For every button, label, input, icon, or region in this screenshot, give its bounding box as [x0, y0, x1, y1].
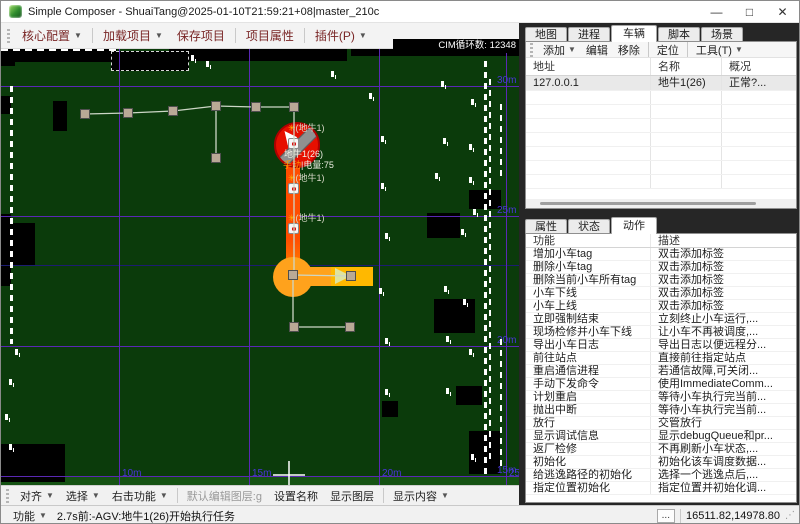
lidar-wall-trace: [484, 61, 487, 476]
grid-label-y: 25m: [497, 206, 516, 216]
action-desc-cell: 指定位置并初始化调...: [651, 482, 796, 494]
table-cell: [651, 147, 722, 160]
table-cell: [526, 175, 651, 188]
menu-separator: [304, 28, 305, 43]
lidar-echo-mark: [441, 81, 444, 87]
tab-5[interactable]: 场景: [701, 27, 743, 42]
lidar-echo-mark: [435, 173, 438, 179]
grid-line-vertical: [119, 49, 120, 485]
table-cell: [651, 175, 722, 188]
action-row[interactable]: 前往站点直接前往指定站点: [526, 352, 796, 365]
route-segment: [128, 111, 173, 113]
app-icon: [9, 5, 22, 18]
menu-item-4[interactable]: 项目属性: [239, 24, 301, 47]
waypoint-marker-icon[interactable]: [288, 138, 299, 149]
action-row[interactable]: 显示调试信息显示debugQueue和pr...: [526, 430, 796, 443]
action-row[interactable]: 放行交管放行: [526, 417, 796, 430]
vehicle-toolbar-button-1[interactable]: 添加▼: [538, 42, 581, 58]
grid-line-horizontal: [1, 476, 519, 477]
table-cell: [722, 91, 796, 104]
action-name-cell: 放行: [526, 417, 651, 429]
vehicle-panel-tabs: 地图进程车辆脚本场景: [525, 25, 797, 42]
action-name-cell: 给逃逸路径的初始化: [526, 469, 651, 481]
action-desc-cell: 若通信故障,可关闭...: [651, 365, 796, 377]
action-name-cell: 增加小车tag: [526, 248, 651, 260]
lidar-wall-trace: [10, 86, 13, 344]
status-bar: 功能 ▼ 2.7s前:-AGV:地牛1(26)开始执行任务 ... 16511.…: [1, 505, 799, 524]
action-panel-body: 功能描述 增加小车tag双击添加标签删除小车tag双击添加标签删除当前小车所有t…: [525, 233, 797, 503]
lidar-echo-mark: [385, 389, 388, 395]
vehicle-horizontal-scrollbar[interactable]: [526, 199, 796, 208]
action-name-cell: 删除当前小车所有tag: [526, 274, 651, 286]
chevron-down-icon: ▼: [74, 32, 82, 40]
lidar-wall-trace: [500, 339, 502, 469]
waypoint-tag-label: ✳(地牛1): [288, 213, 325, 223]
chevron-down-icon: ▼: [92, 492, 100, 500]
action-desc-cell: 立刻终止小车运行,...: [651, 313, 796, 325]
action-row[interactable]: 重启通信进程若通信故障,可关闭...: [526, 365, 796, 378]
vehicle-toolbar-button-2[interactable]: 编辑: [581, 42, 613, 58]
lidar-echo-mark: [444, 286, 447, 292]
lidar-echo-mark: [385, 338, 388, 344]
button-label: 编辑: [586, 42, 608, 58]
tab-2[interactable]: 状态: [568, 219, 610, 234]
edit-toolbar-item-3[interactable]: 右击功能▼: [106, 488, 174, 504]
lidar-echo-mark: [369, 93, 372, 99]
table-cell: [722, 119, 796, 132]
maximize-button[interactable]: □: [733, 1, 766, 22]
route-node[interactable]: [212, 154, 221, 163]
tab-1[interactable]: 地图: [525, 27, 567, 42]
action-name-cell: 小车下线: [526, 287, 651, 299]
lidar-echo-mark: [381, 183, 384, 189]
action-panel: 属性状态动作 功能描述 增加小车tag双击添加标签删除小车tag双击添加标签删除…: [525, 217, 797, 503]
cim-loop-counter: CIM循环数: 12348: [393, 39, 519, 53]
table-cell: [722, 147, 796, 160]
waypoint-tag-label: ✳(地牛1): [288, 173, 325, 183]
more-button[interactable]: ...: [657, 509, 675, 523]
chevron-down-icon: ▼: [155, 32, 163, 40]
table-row-empty: [526, 91, 796, 105]
title-bar[interactable]: Simple Composer - ShuaiTang@2025-01-10T2…: [1, 1, 799, 23]
lidar-echo-mark: [5, 414, 8, 420]
lidar-echo-mark: [191, 55, 194, 61]
action-name-cell: 小车上线: [526, 300, 651, 312]
button-label: 选择: [66, 488, 88, 504]
lidar-echo-mark: [471, 99, 474, 105]
action-desc-cell: 等待小车执行完当前...: [651, 391, 796, 403]
lidar-echo-mark: [463, 299, 466, 305]
lidar-echo-mark: [385, 233, 388, 239]
table-row-empty: [526, 119, 796, 133]
table-cell: [651, 161, 722, 174]
action-row[interactable]: 返厂检修不再刷新小车状态,...: [526, 443, 796, 456]
action-desc-cell: 交管放行: [651, 417, 796, 429]
lidar-echo-mark: [471, 454, 474, 460]
table-cell: [526, 105, 651, 118]
toolbar-grip[interactable]: [6, 489, 9, 503]
table-cell: [526, 133, 651, 146]
tab-1[interactable]: 属性: [525, 219, 567, 234]
action-row[interactable]: 计划重启等待小车执行完当前...: [526, 391, 796, 404]
table-cell: [722, 133, 796, 146]
edit-toolbar-item-2[interactable]: 选择▼: [60, 488, 106, 504]
lidar-wall-trace: [500, 104, 502, 179]
menu-item-5[interactable]: 插件(P)▼: [308, 24, 374, 47]
toolbar-separator: [383, 488, 384, 503]
action-name-cell: 导出小车日志: [526, 339, 651, 351]
resize-grip-icon[interactable]: ⋰: [785, 510, 795, 522]
action-desc-cell: 双击添加标签: [651, 261, 796, 273]
waypoint-tag-text: (地牛1): [296, 123, 325, 133]
toolbar-grip[interactable]: [7, 29, 10, 43]
table-cell: [651, 91, 722, 104]
table-row-empty: [526, 161, 796, 175]
route-node[interactable]: [290, 103, 299, 112]
table-row[interactable]: 127.0.0.1地牛1(26)正常?...: [526, 76, 796, 91]
table-row-empty: [526, 105, 796, 119]
chevron-down-icon: ▼: [46, 492, 54, 500]
lidar-echo-mark: [473, 209, 476, 215]
lidar-wall-trace: [489, 79, 491, 459]
action-row[interactable]: 手动下发命令使用ImmediateComm...: [526, 378, 796, 391]
action-desc-cell: 双击添加标签: [651, 248, 796, 260]
vehicle-panel: 地图进程车辆脚本场景 添加▼编辑移除定位工具(T)▼ 地址名称概况 127.0.…: [525, 25, 797, 209]
action-name-cell: 立即强制结束: [526, 313, 651, 325]
button-label: 默认编辑图层:g: [187, 488, 262, 504]
grid-label-y: 30m: [497, 76, 516, 86]
menu-item-3[interactable]: 保存项目: [170, 24, 232, 47]
action-name-cell: 初始化: [526, 456, 651, 468]
chevron-down-icon: ▼: [39, 512, 47, 520]
action-name-cell: 返厂检修: [526, 443, 651, 455]
agv-name-label: 地牛1(26): [284, 149, 323, 159]
table-cell: 正常?...: [722, 76, 796, 90]
lidar-echo-mark: [446, 388, 449, 394]
vehicle-panel-body: 添加▼编辑移除定位工具(T)▼ 地址名称概况 127.0.0.1地牛1(26)正…: [525, 41, 797, 209]
column-header[interactable]: 名称: [651, 58, 722, 75]
table-cell: [651, 133, 722, 146]
grid-label-x: 20m: [382, 469, 401, 479]
action-desc-cell: 导出日志以便远程分...: [651, 339, 796, 351]
grid-line-horizontal: [1, 346, 519, 347]
route-node[interactable]: [290, 323, 299, 332]
agv-battery-text: |电量:75: [301, 160, 334, 170]
chevron-down-icon: ▼: [568, 46, 576, 54]
lidar-echo-mark: [9, 379, 12, 385]
table-cell: 地牛1(26): [651, 76, 722, 90]
toolbar-separator: [648, 42, 649, 57]
lidar-echo-mark: [9, 444, 12, 450]
lidar-wall-trace: [1, 49, 121, 51]
table-cell: [526, 147, 651, 160]
agv-mode-text: 手动: [283, 160, 301, 170]
map-unmapped-area: [382, 401, 398, 417]
lidar-echo-mark: [379, 288, 382, 294]
action-panel-tabs: 属性状态动作: [525, 217, 797, 234]
button-label: 工具(T): [696, 42, 732, 58]
map-unmapped-area: [169, 49, 347, 61]
route-segment: [216, 106, 256, 107]
action-desc-cell: 让小车不再被调度,...: [651, 326, 796, 338]
lidar-echo-mark: [469, 177, 472, 183]
map-unmapped-area: [434, 299, 475, 333]
tab-4[interactable]: 脚本: [658, 27, 700, 42]
action-desc-cell: 初始化该车调度数据...: [651, 456, 796, 468]
route-overlay: [1, 49, 519, 485]
menu-item-label: 插件(P): [315, 27, 355, 44]
action-desc-cell: 选择一个逃逸点后,...: [651, 469, 796, 481]
button-label: 对齐: [20, 488, 42, 504]
action-row[interactable]: 导出小车日志导出日志以便远程分...: [526, 339, 796, 352]
menu-separator: [235, 28, 236, 43]
route-node[interactable]: [346, 323, 355, 332]
lidar-echo-mark: [443, 138, 446, 144]
column-header[interactable]: 功能: [526, 234, 651, 247]
chevron-down-icon: ▼: [359, 32, 367, 40]
waypoint-tag-text: (地牛1): [296, 213, 325, 223]
menu-item-label: 加载项目: [103, 27, 151, 44]
action-row[interactable]: 现场检修并小车下线让小车不再被调度,...: [526, 326, 796, 339]
table-cell: [526, 161, 651, 174]
tab-3[interactable]: 车辆: [611, 25, 657, 42]
chevron-down-icon: ▼: [735, 46, 743, 54]
action-row[interactable]: 小车上线双击添加标签: [526, 300, 796, 313]
action-name-cell: 前往站点: [526, 352, 651, 364]
minimize-button[interactable]: —: [700, 1, 733, 22]
lidar-echo-mark: [469, 349, 472, 355]
table-cell: 127.0.0.1: [526, 76, 651, 90]
action-name-cell: 重启通信进程: [526, 365, 651, 377]
table-cell: [722, 161, 796, 174]
route-node[interactable]: [169, 107, 178, 116]
edit-toolbar-item-1[interactable]: 对齐▼: [14, 488, 60, 504]
button-label: 显示内容: [393, 488, 437, 504]
column-header[interactable]: 地址: [526, 58, 651, 75]
action-row[interactable]: 删除当前小车所有tag双击添加标签: [526, 274, 796, 287]
mapped-room-outline: [111, 51, 189, 71]
grid-label-x: 10m: [122, 469, 141, 479]
cursor-coordinates: 16511.82,14978.80: [686, 510, 780, 522]
menu-item-1[interactable]: 核心配置▼: [15, 24, 89, 47]
tab-2[interactable]: 进程: [568, 27, 610, 42]
edit-toolbar-item-7[interactable]: 显示内容▼: [387, 488, 455, 504]
button-label: 显示图层: [330, 488, 374, 504]
agv-status-label: 手动|电量:75: [283, 160, 334, 170]
lidar-echo-mark: [206, 61, 209, 67]
vehicle-table-rows: 127.0.0.1地牛1(26)正常?...: [526, 76, 796, 199]
column-header[interactable]: 描述: [651, 234, 796, 247]
edit-toolbar-item-5[interactable]: 设置名称: [268, 488, 324, 504]
action-name-cell: 现场检修并小车下线: [526, 326, 651, 338]
action-row[interactable]: 给逃逸路径的初始化选择一个逃逸点后,...: [526, 469, 796, 482]
menu-separator: [92, 28, 93, 43]
table-row-empty: [526, 133, 796, 147]
menu-item-label: 核心配置: [22, 27, 70, 44]
action-table-header[interactable]: 功能描述: [526, 234, 796, 248]
table-row-empty: [526, 175, 796, 189]
button-label: 设置名称: [274, 488, 318, 504]
action-name-cell: 抛出中断: [526, 404, 651, 416]
vehicle-toolbar: 添加▼编辑移除定位工具(T)▼: [526, 42, 796, 58]
vehicle-toolbar-button-4[interactable]: 定位: [652, 42, 684, 58]
lidar-echo-mark: [15, 349, 18, 355]
action-desc-cell: 直接前往指定站点: [651, 352, 796, 364]
map-unmapped-area: [1, 51, 15, 66]
menu-item-label: 项目属性: [246, 27, 294, 44]
waypoint-marker-icon[interactable]: [288, 223, 299, 234]
action-row[interactable]: 初始化初始化该车调度数据...: [526, 456, 796, 469]
vehicle-toolbar-button-3[interactable]: 移除: [613, 42, 645, 58]
action-row[interactable]: 增加小车tag双击添加标签: [526, 248, 796, 261]
action-name-cell: 计划重启: [526, 391, 651, 403]
map-canvas[interactable]: 10m15m20m25m30m25m20m15m✳(地牛1)✳(地牛1)✳(地牛…: [1, 49, 519, 485]
route-node[interactable]: [252, 103, 261, 112]
close-button[interactable]: ✕: [766, 1, 799, 22]
button-label: 定位: [657, 42, 679, 58]
separator: [680, 509, 681, 523]
route-node[interactable]: [212, 102, 221, 111]
waypoint-tag-text: (地牛1): [296, 173, 325, 183]
edit-toolbar-item-4: 默认编辑图层:g: [181, 488, 268, 504]
status-function-menu[interactable]: 功能 ▼: [7, 508, 53, 524]
grid-line-vertical: [379, 49, 380, 485]
grid-line-horizontal: [1, 216, 519, 217]
table-cell: [526, 119, 651, 132]
button-label: 移除: [618, 42, 640, 58]
map-unmapped-area: [456, 386, 482, 405]
action-row[interactable]: 立即强制结束立刻终止小车运行,...: [526, 313, 796, 326]
action-table-rows: 增加小车tag双击添加标签删除小车tag双击添加标签删除当前小车所有tag双击添…: [526, 248, 796, 502]
status-message: 2.7s前:-AGV:地牛1(26)开始执行任务: [57, 508, 235, 524]
menu-item-label: 保存项目: [177, 27, 225, 44]
toolbar-grip[interactable]: [530, 43, 533, 57]
vehicle-table-header[interactable]: 地址名称概况: [526, 58, 796, 76]
action-desc-cell: 双击添加标签: [651, 274, 796, 286]
status-function-label: 功能: [13, 508, 35, 524]
route-node[interactable]: [124, 109, 133, 118]
lidar-echo-mark: [381, 136, 384, 142]
map-unmapped-area: [53, 101, 67, 131]
action-row[interactable]: 删除小车tag双击添加标签: [526, 261, 796, 274]
table-cell: [722, 105, 796, 118]
vehicle-toolbar-button-5[interactable]: 工具(T)▼: [691, 42, 748, 58]
action-desc-cell: 双击添加标签: [651, 287, 796, 299]
chevron-down-icon: ▼: [441, 492, 449, 500]
action-row[interactable]: 抛出中断等待小车执行完当前...: [526, 404, 796, 417]
window-controls: — □ ✕: [700, 1, 799, 22]
action-desc-cell: 双击添加标签: [651, 300, 796, 312]
lidar-echo-mark: [461, 229, 464, 235]
route-segment: [85, 113, 128, 114]
lidar-echo-mark: [331, 71, 334, 77]
waypoint-marker-icon[interactable]: [288, 183, 299, 194]
grid-line-vertical: [506, 49, 507, 485]
button-label: 右击功能: [112, 488, 156, 504]
app-window: Simple Composer - ShuaiTang@2025-01-10T2…: [0, 0, 800, 524]
edit-toolbar-item-6[interactable]: 显示图层: [324, 488, 380, 504]
star-icon: ✳: [288, 123, 296, 133]
button-label: 添加: [543, 42, 565, 58]
action-row[interactable]: 小车下线双击添加标签: [526, 287, 796, 300]
lidar-echo-mark: [469, 144, 472, 150]
action-desc-cell: 等待小车执行完当前...: [651, 404, 796, 416]
action-name-cell: 指定位置初始化: [526, 482, 651, 494]
route-node[interactable]: [81, 110, 90, 119]
table-cell: [526, 91, 651, 104]
table-row-empty: [526, 147, 796, 161]
tab-3[interactable]: 动作: [611, 217, 657, 234]
column-header[interactable]: 概况: [722, 58, 796, 75]
window-title: Simple Composer - ShuaiTang@2025-01-10T2…: [28, 6, 379, 18]
grid-line-vertical: [249, 49, 250, 485]
action-desc-cell: 不再刷新小车状态,...: [651, 443, 796, 455]
action-row[interactable]: 指定位置初始化指定位置并初始化调...: [526, 482, 796, 495]
action-name-cell: 删除小车tag: [526, 261, 651, 273]
menu-item-2[interactable]: 加载项目▼: [96, 24, 170, 47]
action-name-cell: 显示调试信息: [526, 430, 651, 442]
table-cell: [651, 105, 722, 118]
table-cell: [722, 175, 796, 188]
map-boundary-line: [1, 265, 519, 266]
grid-label-x: 15m: [252, 469, 271, 479]
waypoint-tag-label: ✳(地牛1): [288, 123, 325, 133]
chevron-down-icon: ▼: [160, 492, 168, 500]
toolbar-separator: [177, 488, 178, 503]
star-icon: ✳: [288, 173, 296, 183]
route-segment: [173, 106, 216, 111]
map-edit-toolbar: 对齐▼选择▼右击功能▼默认编辑图层:g设置名称显示图层显示内容▼: [1, 485, 519, 505]
lidar-echo-mark: [446, 336, 449, 342]
action-name-cell: 手动下发命令: [526, 378, 651, 390]
action-desc-cell: 使用ImmediateComm...: [651, 378, 796, 390]
table-cell: [651, 119, 722, 132]
action-desc-cell: 显示debugQueue和pr...: [651, 430, 796, 442]
toolbar-separator: [687, 42, 688, 57]
star-icon: ✳: [288, 213, 296, 223]
